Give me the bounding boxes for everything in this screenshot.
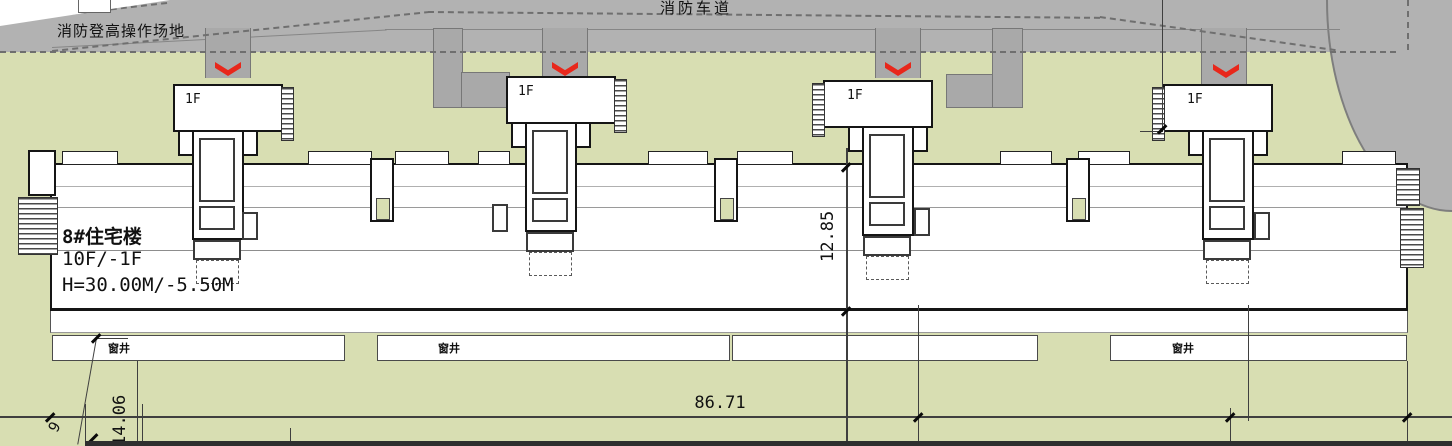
unit-entrance-1: 1F: [173, 84, 293, 304]
unit-floor-label: 1F: [185, 92, 201, 107]
elevator-shaft: [532, 198, 568, 222]
witness-line: [1407, 361, 1408, 446]
paved-path: [946, 74, 994, 108]
witness-line: [142, 404, 143, 446]
light-well-pit: [720, 198, 734, 220]
end-balcony: [28, 150, 56, 196]
unit-floor-label: 1F: [518, 84, 534, 99]
core-base: [193, 240, 241, 260]
entry-canopy: [823, 80, 933, 128]
end-balcony-hatched: [1396, 168, 1420, 206]
core-lower: [242, 212, 258, 240]
roof-bay: [1000, 151, 1052, 165]
witness-line: [85, 404, 86, 446]
unit-entrance-2: 1F: [506, 76, 626, 296]
dim-line-horizontal: [0, 416, 1452, 418]
core-base: [526, 232, 574, 252]
stair-flight: [199, 138, 235, 202]
canopy-grille: [614, 79, 627, 133]
core-lower: [492, 204, 508, 232]
window-well-strip: [732, 335, 1038, 361]
elevator-shaft: [869, 202, 905, 226]
well-leader-line: [98, 338, 128, 339]
unit-entrance-3: 1F: [823, 80, 943, 300]
unit-entrance-4: 1F: [1163, 84, 1283, 304]
window-well-label: 窗井: [108, 340, 130, 356]
end-balcony-hatched: [1400, 208, 1424, 268]
core-lower: [1254, 212, 1270, 240]
dim-overall-width: 86.71: [620, 393, 820, 413]
entry-canopy: [1163, 84, 1273, 132]
window-well-strip: [377, 335, 730, 361]
elevator-shaft: [199, 206, 235, 230]
core-base: [1203, 240, 1251, 260]
unit-floor-label: 1F: [1187, 92, 1203, 107]
canopy-grille: [812, 83, 825, 137]
light-well: [714, 158, 738, 222]
basement-outline: [529, 252, 572, 276]
building-floors: 10F/-1F: [62, 248, 142, 270]
witness-line: [1248, 305, 1249, 421]
witness-line: [918, 305, 919, 446]
dim-building-depth: 12.85: [818, 190, 838, 262]
roof-bay: [308, 151, 372, 165]
site-plan-drawing: 消防车道 消防登高操作场地 1F: [0, 0, 1452, 446]
building-height: H=30.00M/-5.50M: [62, 274, 234, 296]
building-name: 8#住宅楼: [62, 222, 142, 249]
stair-flight: [532, 130, 568, 194]
plinth-band: [50, 311, 1408, 333]
witness-line: [137, 361, 138, 446]
canopy-grille: [281, 87, 294, 141]
dim-partial: 9: [44, 419, 64, 436]
light-well-pit: [376, 198, 390, 220]
road-dashed-edge: [1407, 0, 1409, 50]
corner-leader-line: [1162, 0, 1163, 132]
unit-floor-label: 1F: [847, 88, 863, 103]
roof-bay: [62, 151, 118, 165]
paved-path: [433, 28, 463, 108]
roof-bay: [737, 151, 793, 165]
light-well-pit: [1072, 198, 1086, 220]
fire-lane-label: 消防车道: [660, 0, 732, 18]
fire-operation-area-label: 消防登高操作场地: [57, 20, 185, 41]
stair-flight: [1209, 138, 1245, 202]
window-well-label: 窗井: [438, 340, 460, 356]
roof-bay: [1342, 151, 1396, 165]
elevator-shaft: [1209, 206, 1245, 230]
corner-notch: [78, 0, 111, 13]
window-well-label: 窗井: [1172, 340, 1194, 356]
stair-flight: [869, 134, 905, 198]
light-well: [370, 158, 394, 222]
core-lower: [914, 208, 930, 236]
window-well-strip: [1110, 335, 1407, 361]
dim-line-depth: [846, 148, 848, 446]
roof-bay: [395, 151, 449, 165]
core-base: [863, 236, 911, 256]
dim-front-setback: 14.06: [110, 378, 130, 446]
paved-path: [461, 72, 510, 108]
paved-path: [992, 28, 1023, 108]
light-well: [1066, 158, 1090, 222]
end-balcony-hatched: [18, 197, 58, 255]
basement-outline: [866, 256, 909, 280]
site-boundary-bar: [85, 441, 1452, 446]
fire-zone-dashed-boundary: [0, 51, 1396, 53]
roof-bay: [648, 151, 708, 165]
basement-outline: [1206, 260, 1249, 284]
